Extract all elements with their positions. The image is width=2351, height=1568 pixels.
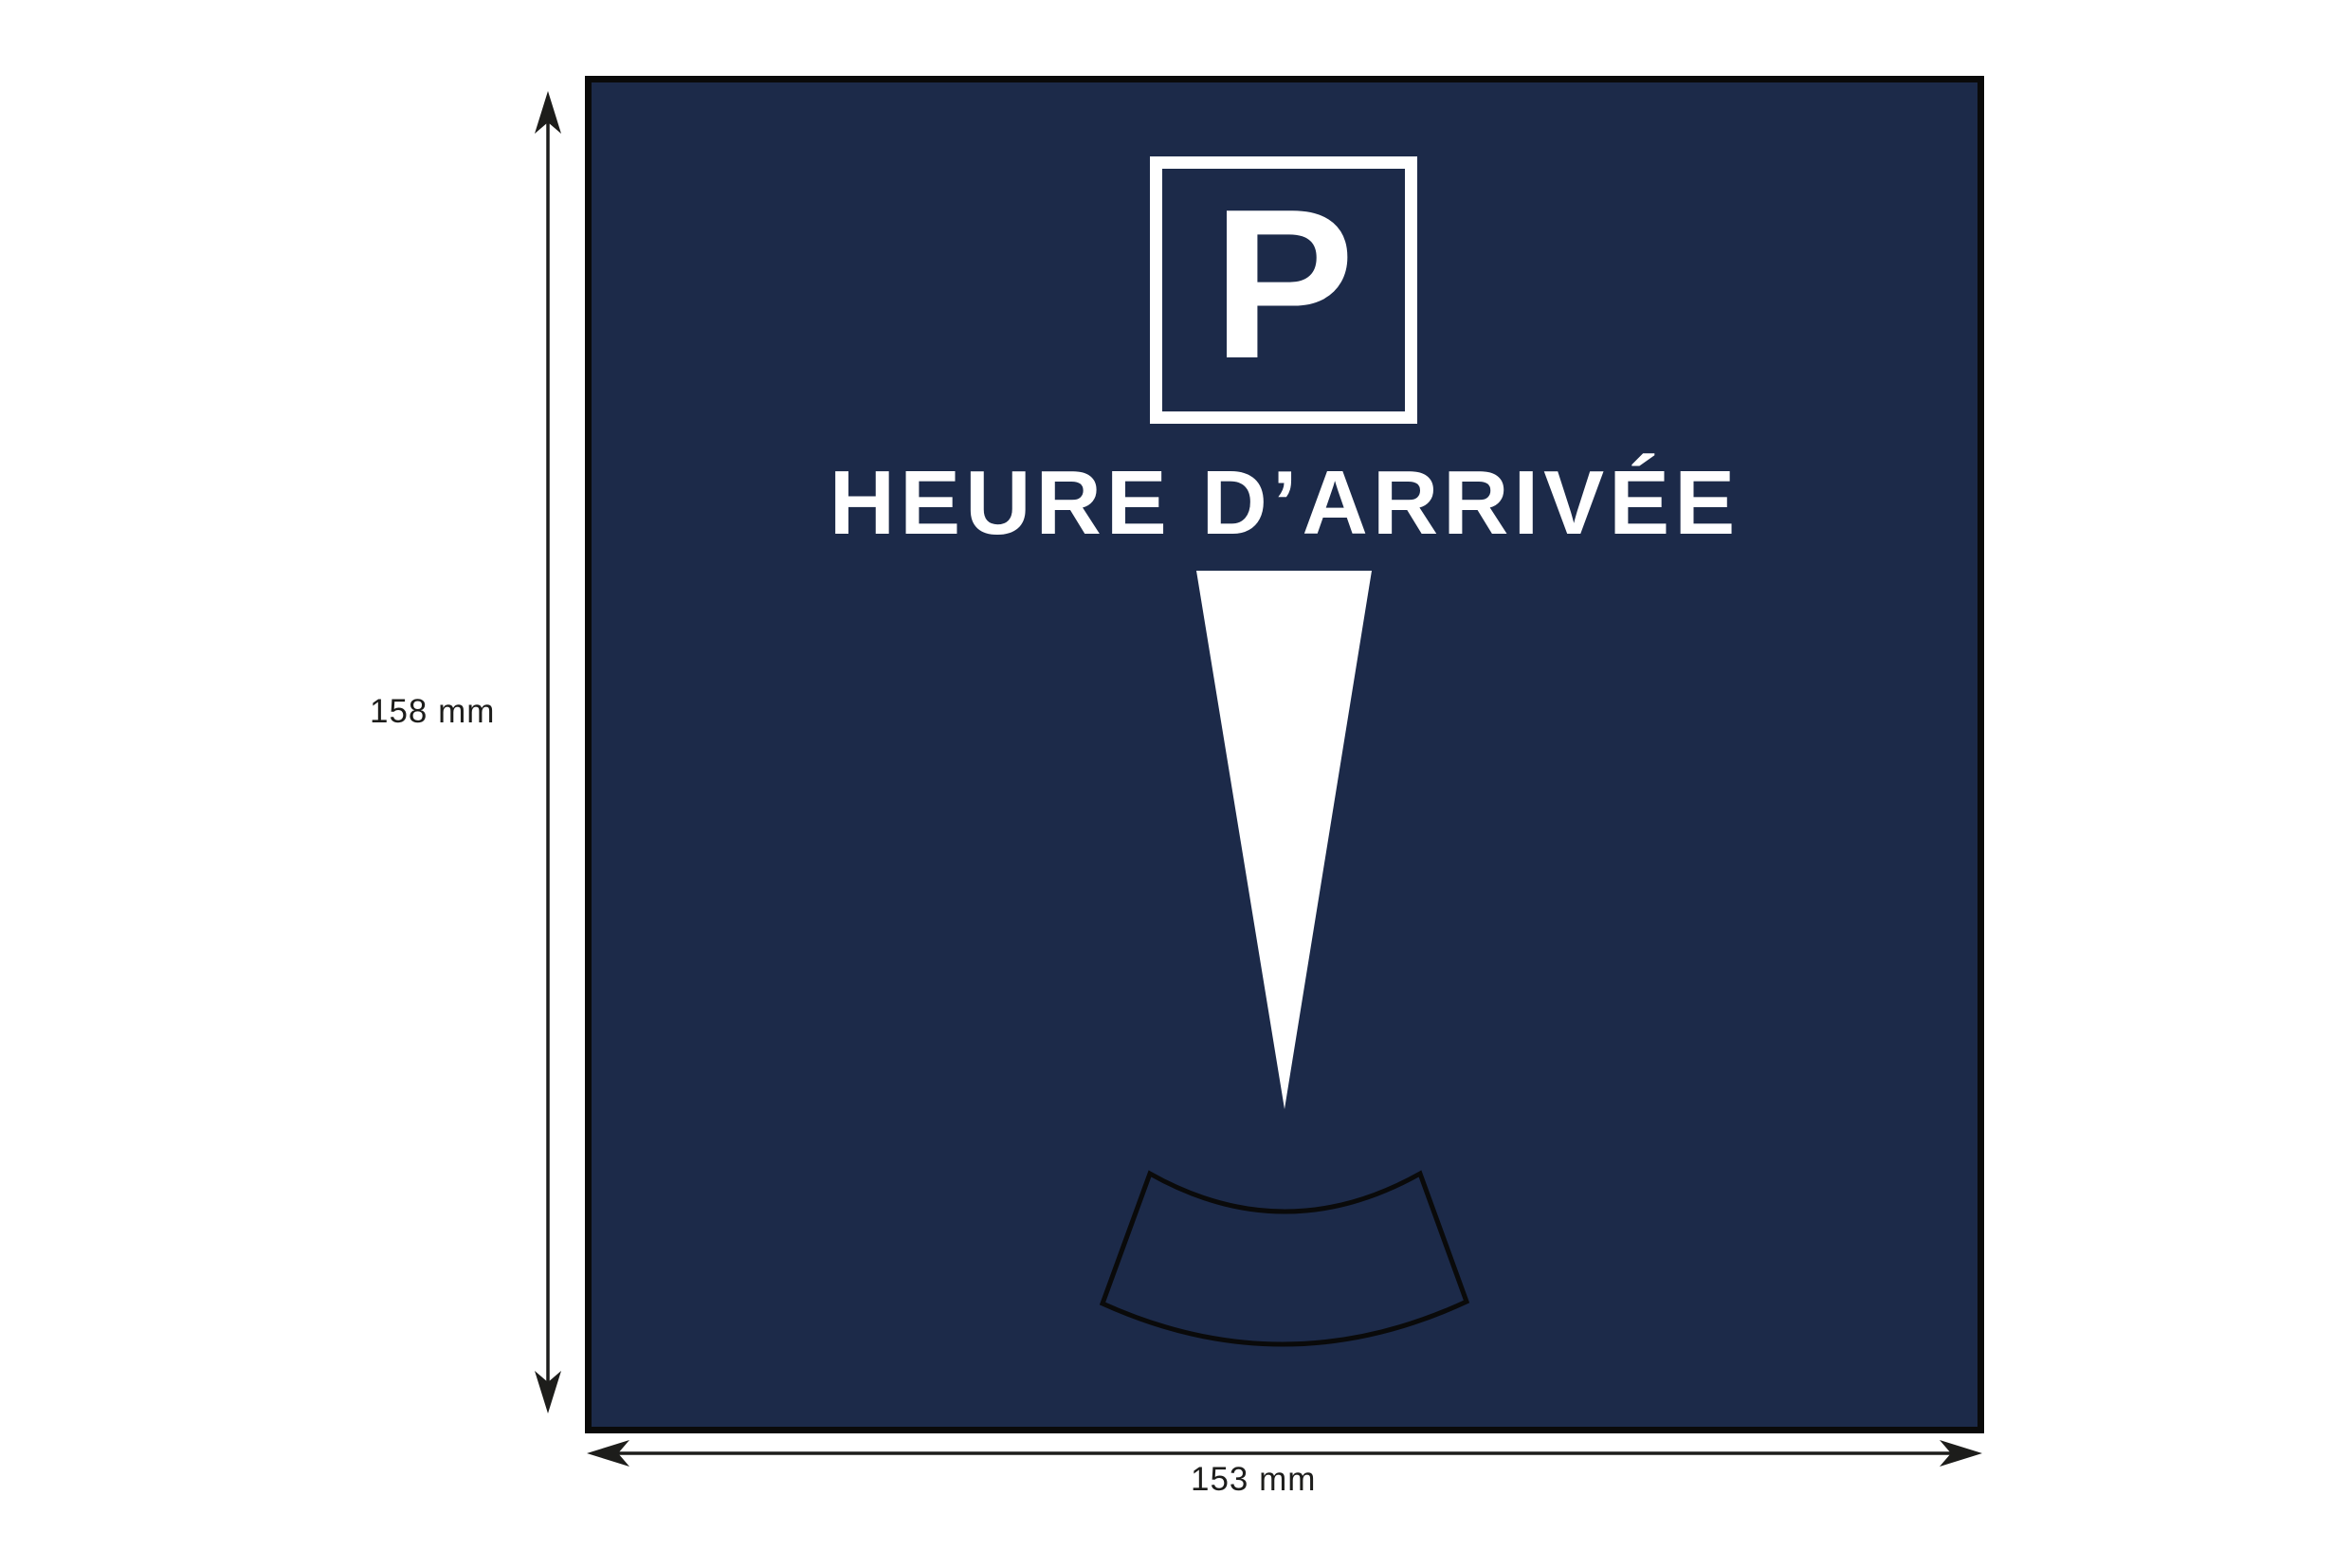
parking-disc-diagram: P HEURE D’ARRIVÉE 158 mm 153 mm: [0, 0, 2351, 1568]
height-dimension-label: 158 mm: [370, 695, 495, 728]
width-dimension-label: 153 mm: [1191, 1463, 1316, 1496]
dimension-arrows: [0, 0, 2351, 1568]
height-dimension-arrow-icon: [535, 91, 561, 1413]
